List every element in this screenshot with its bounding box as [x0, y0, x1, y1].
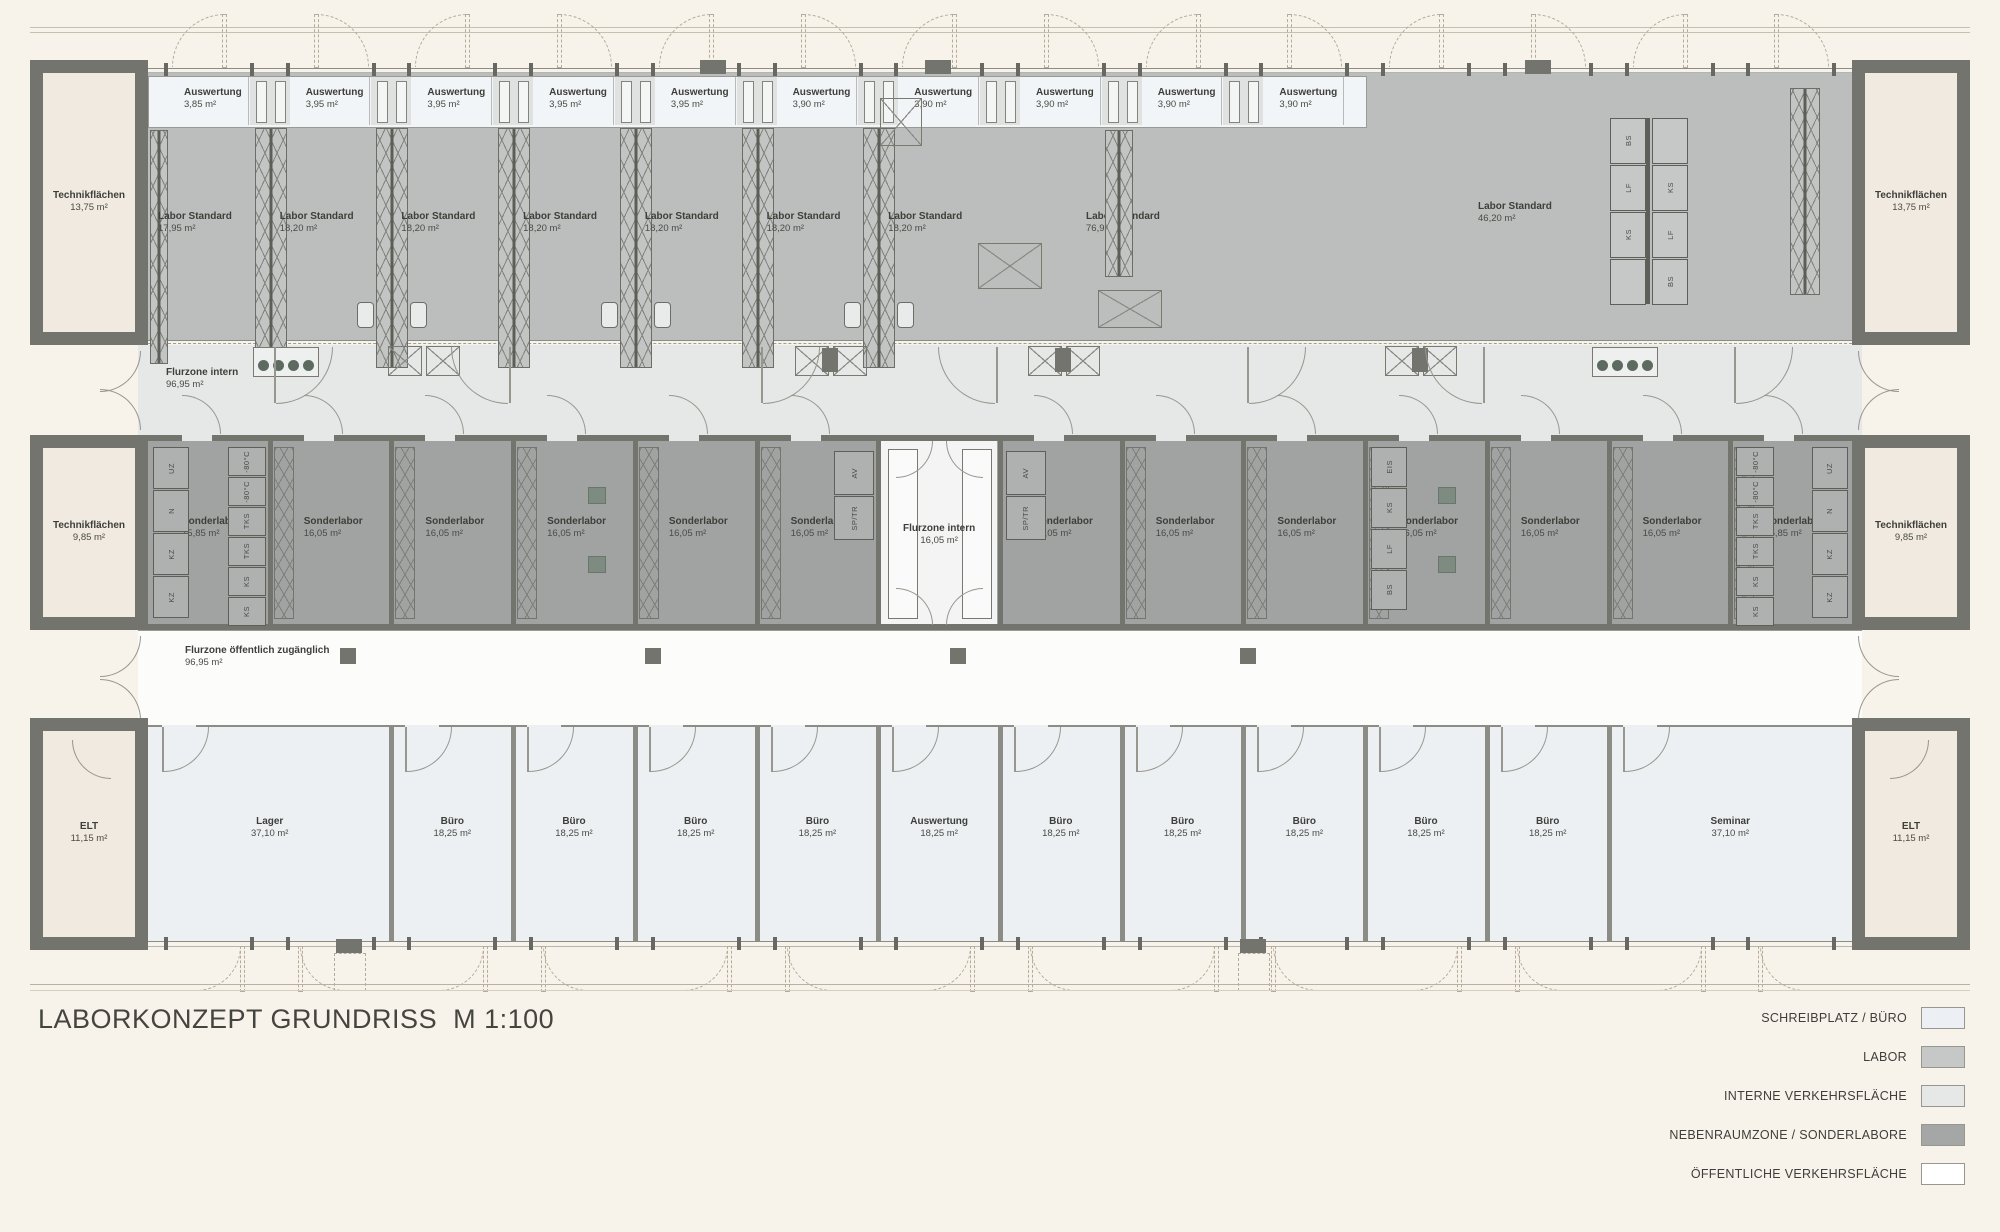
corridor-shaft-box: [1066, 346, 1100, 376]
entry-door-swing-arc: [1389, 14, 1442, 67]
auswertung-room-label-area: 3,95 m²: [427, 99, 459, 111]
facade-mullion-tick: [1467, 937, 1471, 950]
lab-equipment-box: LF: [1610, 165, 1646, 211]
equipment-code: KZ: [1825, 549, 1834, 560]
sonder-room-label-name: Sonderlabor: [304, 515, 363, 528]
lab-island-table: [1098, 290, 1162, 328]
facade-mullion-tick: [372, 937, 376, 950]
auswertung-room-label-name: Auswertung: [1279, 86, 1337, 99]
sonder-equipment-box: KZ: [153, 533, 189, 575]
office-room-label-name: Büro: [1049, 815, 1072, 828]
sonder-rack-strip: [1126, 447, 1146, 619]
equipment-code: LF: [1666, 230, 1675, 240]
equipment-code: TKS: [242, 513, 251, 529]
office-door-leaf: [771, 727, 773, 772]
auswertung-room-label-area: 3,90 m²: [1036, 99, 1068, 111]
sonder-equipment-box: KS: [1736, 567, 1774, 596]
plan-sheet: Auswertung3,85 m²Auswertung3,95 m²Auswer…: [0, 0, 2000, 1232]
auswertung-room-label-area: 3,90 m²: [1279, 99, 1311, 111]
intern-corridor-label-name: Flurzone intern: [166, 366, 238, 379]
sonder-equipment-box: AV: [834, 451, 874, 495]
entry-door-leaf: [1683, 14, 1688, 68]
sonder-room-label-name: Sonderlabor: [1399, 515, 1458, 528]
sonder-green-unit: [588, 556, 606, 573]
lab-sink: [410, 302, 427, 328]
labor-room-label-name: Labor Standard: [1478, 200, 1552, 213]
office-room-label-name: Lager: [256, 815, 283, 828]
office-room-label-name: Büro: [684, 815, 707, 828]
labor-room-label-area: 18,20 m²: [888, 223, 926, 235]
equipment-code: BS: [1385, 584, 1394, 595]
entry-door-swing-arc: [1776, 14, 1829, 67]
sonder-equipment-box: -80°C: [1736, 447, 1774, 476]
sonder-equipment-box: KZ: [153, 576, 189, 618]
facade-mullion-tick: [1381, 63, 1385, 76]
labor-room-label-name: Labor Standard: [523, 210, 597, 223]
auswertung-room-label-area: 3,95 m²: [306, 99, 338, 111]
lab-equipment-box: BS: [1610, 118, 1646, 164]
facade-mullion-tick: [1503, 63, 1507, 76]
facade-mullion-tick: [1224, 937, 1228, 950]
legend-row: INTERNE VERKEHRSFLÄCHE: [1300, 1085, 1965, 1107]
facade-mullion-tick: [859, 63, 863, 76]
legend-swatch: [1921, 1046, 1965, 1068]
legend-label: INTERNE VERKEHRSFLÄCHE: [1724, 1089, 1907, 1103]
corridor-column: [340, 648, 356, 664]
labor-room-label-area: 18,20 m²: [767, 223, 805, 235]
main-entry-block: [1525, 60, 1551, 74]
lab-equipment-box: KS: [1652, 165, 1688, 211]
sonder-equipment-box: BS: [1371, 570, 1407, 610]
public-corridor: [138, 630, 1862, 726]
sonder-rack-strip: [1613, 447, 1633, 619]
technik-room-label-name: Technikflächen: [53, 519, 125, 532]
sonder-rack-strip: [1491, 447, 1511, 619]
lab-sink: [357, 302, 374, 328]
entry-door-swing-arc: [1289, 14, 1342, 67]
office-partition-wall: [1120, 727, 1125, 941]
auswertung-door-leaf: [986, 81, 997, 123]
equipment-code: LF: [1385, 544, 1394, 554]
office-room-label-name: Büro: [1536, 815, 1559, 828]
facade-mullion-tick: [493, 63, 497, 76]
auswertung-room-label-name: Auswertung: [793, 86, 851, 99]
sonder-door-gap: [182, 435, 212, 441]
seating-dot: [1627, 360, 1638, 371]
legend-swatch: [1921, 1163, 1965, 1185]
equipment-code: -80°C: [242, 451, 251, 473]
entry-door-swing-arc: [1046, 14, 1099, 67]
main-entry-block: [925, 60, 951, 74]
corridor-shaft-core: [1055, 348, 1071, 372]
auswertung-room-label-name: Auswertung: [306, 86, 364, 99]
sonder-equipment-box: UZ: [153, 447, 189, 489]
sonder-equipment-box: KZ: [1812, 576, 1848, 618]
office-room-label-area: 18,25 m²: [1042, 828, 1080, 840]
entry-door-leaf: [801, 14, 806, 68]
facade-mullion-tick: [407, 63, 411, 76]
equipment-code: KS: [1666, 182, 1675, 193]
title-divider: [30, 984, 1970, 991]
auswertung-door-leaf: [1127, 81, 1138, 123]
office-partition-wall: [1241, 727, 1246, 941]
intern-corridor-label-area: 96,95 m²: [166, 379, 204, 391]
sonder-equipment-box: AV: [1006, 451, 1046, 495]
labor-room-label-area: 18,20 m²: [645, 223, 683, 235]
lab-bench-strip: [1790, 88, 1820, 295]
office-room-label-area: 18,25 m²: [434, 828, 472, 840]
office-room-label-area: 18,25 m²: [555, 828, 593, 840]
facade-mullion-tick: [529, 937, 533, 950]
equipment-code: TKS: [242, 543, 251, 559]
sonder-room-label-area: 16,05 m²: [1521, 528, 1559, 540]
equipment-code: KS: [1385, 502, 1394, 513]
equipment-code: LF: [1624, 183, 1633, 193]
lab-sink: [844, 302, 861, 328]
equipment-code: -80°C: [1751, 451, 1760, 473]
auswertung-room-label-name: Auswertung: [914, 86, 972, 99]
lab-sink: [897, 302, 914, 328]
office-room-label-area: 18,25 m²: [799, 828, 837, 840]
equipment-code: BS: [1624, 135, 1633, 146]
equipment-code: KS: [1751, 606, 1760, 617]
equipment-code: KS: [242, 606, 251, 617]
sonder-rack-strip: [395, 447, 415, 619]
lab-island-table: [880, 98, 922, 146]
equipment-code: N: [1825, 508, 1834, 514]
equipment-code: EIS: [1385, 460, 1394, 474]
facade-mullion-tick: [1138, 63, 1142, 76]
lab-sink: [601, 302, 618, 328]
equipment-code: TKS: [1751, 513, 1760, 529]
sonder-room-label-name: Sonderlabor: [425, 515, 484, 528]
facade-mullion-tick: [980, 63, 984, 76]
sonder-equipment-box: KS: [228, 597, 266, 626]
office-partition-wall: [389, 727, 394, 941]
auswertung-door-leaf: [499, 81, 510, 123]
auswertung-door-leaf: [743, 81, 754, 123]
equipment-code: -80°C: [1751, 481, 1760, 503]
sonder-equipment-box: -80°C: [1736, 477, 1774, 506]
sonder-door-gap: [1277, 435, 1307, 441]
office-partition-wall: [755, 727, 760, 941]
office-room-label-area: 18,25 m²: [920, 828, 958, 840]
sonder-room-label-name: Sonderlabor: [1277, 515, 1336, 528]
lab-door-leaf: [274, 347, 276, 403]
facade-mullion-tick: [894, 63, 898, 76]
office-door-leaf: [1501, 727, 1503, 772]
equipment-code: -80°C: [242, 481, 251, 503]
sonder-equipment-box: LF: [1371, 529, 1407, 569]
labor-room-label-area: 18,20 m²: [401, 223, 439, 235]
elt-room-label-name: ELT: [80, 820, 98, 833]
auswertung-room-label-area: 3,95 m²: [671, 99, 703, 111]
office-door-leaf: [1379, 727, 1381, 772]
equipment-code: SP/TR: [1021, 506, 1030, 531]
sonder-partition-wall: [1363, 441, 1368, 624]
sonder-equipment-box: TKS: [228, 537, 266, 566]
facade-mullion-tick: [980, 937, 984, 950]
facade-mullion-tick: [250, 63, 254, 76]
elt-room-label-name: ELT: [1902, 820, 1920, 833]
office-room-label-area: 18,25 m²: [1286, 828, 1324, 840]
sonder-rack-strip: [517, 447, 537, 619]
sonder-room-label-area: 16,05 m²: [547, 528, 585, 540]
entry-door-swing-arc: [559, 14, 612, 67]
sonder-partition-wall: [1607, 441, 1612, 624]
sonder-door-gap: [669, 435, 699, 441]
sonder-room-label-name: Sonderlabor: [1521, 515, 1580, 528]
entry-door-swing-arc: [415, 14, 468, 67]
lab-sink: [654, 302, 671, 328]
technik-room-label-name: Technikflächen: [1875, 189, 1947, 202]
office-room-label-name: Auswertung: [910, 815, 968, 828]
sonder-rack-strip: [274, 447, 294, 619]
sonder-room-label-area: 16,05 m²: [425, 528, 463, 540]
entry-door-leaf: [1196, 14, 1201, 68]
auswertung-room-label-area: 3,90 m²: [1158, 99, 1190, 111]
sonder-equipment-box: KS: [1371, 488, 1407, 528]
legend-swatch: [1921, 1085, 1965, 1107]
office-room-label-name: Büro: [1293, 815, 1316, 828]
facade-mullion-tick: [164, 63, 168, 76]
technik-room-label-area: 13,75 m²: [70, 202, 108, 214]
office-door-leaf: [1257, 727, 1259, 772]
sonder-room-label-area: 16,05 m²: [791, 528, 829, 540]
office-room-label-area: 18,25 m²: [677, 828, 715, 840]
sonder-door-gap: [1399, 435, 1429, 441]
facade-mullion-tick: [1746, 63, 1750, 76]
sonder-equipment-box: TKS: [228, 507, 266, 536]
seating-dot: [1612, 360, 1623, 371]
office-door-leaf: [649, 727, 651, 772]
office-partition-wall: [1607, 727, 1612, 941]
sonder-rack-strip: [761, 447, 781, 619]
lab-equipment-box: KS: [1610, 212, 1646, 258]
sonder-equipment-box: TKS: [1736, 537, 1774, 566]
facade-mullion-tick: [773, 63, 777, 76]
facade-mullion-tick: [529, 63, 533, 76]
technik-room-label-area: 9,85 m²: [73, 532, 105, 544]
entry-door-swing-arc: [316, 14, 369, 67]
auswertung-room-label-name: Auswertung: [549, 86, 607, 99]
facade-mullion-tick: [773, 937, 777, 950]
equipment-code: KZ: [167, 592, 176, 603]
double-door-arc: [1858, 389, 1899, 430]
sonder-flur-label-name: Flurzone intern: [903, 522, 975, 535]
office-room-label-name: Büro: [1171, 815, 1194, 828]
sonder-equipment-box: EIS: [1371, 447, 1407, 487]
lab-bench-strip: [376, 128, 408, 368]
auswertung-room-label-area: 3,85 m²: [184, 99, 216, 111]
auswertung-door-leaf: [640, 81, 651, 123]
lab-bench-strip: [150, 130, 168, 364]
sonder-room-label-area: 16,05 m²: [669, 528, 707, 540]
sonder-room-label-name: Sonderlabor: [669, 515, 728, 528]
facade-mullion-tick: [859, 937, 863, 950]
lab-door-leaf: [1247, 347, 1249, 403]
seating-dot: [1597, 360, 1608, 371]
sonder-equipment-box: SP/TR: [1006, 496, 1046, 540]
auswertung-door-leaf: [864, 81, 875, 123]
facade-mullion-tick: [1102, 63, 1106, 76]
facade-mullion-tick: [286, 937, 290, 950]
sonder-partition-wall: [268, 441, 273, 624]
facade-mullion-tick: [1625, 937, 1629, 950]
facade-mullion-tick: [1589, 937, 1593, 950]
entry-door-leaf: [314, 14, 319, 68]
sonder-green-unit: [1438, 487, 1456, 504]
sonder-equipment-box: KZ: [1812, 533, 1848, 575]
legend-label: ÖFFENTLICHE VERKEHRSFLÄCHE: [1691, 1167, 1907, 1181]
facade-mullion-tick: [1016, 63, 1020, 76]
office-room-label-name: Büro: [441, 815, 464, 828]
lab-bench-strip: [1105, 130, 1133, 277]
office-partition-wall: [1363, 727, 1368, 941]
auswertung-door-leaf: [275, 81, 286, 123]
facade-mullion-tick: [737, 63, 741, 76]
facade-mullion-tick: [1138, 937, 1142, 950]
facade-mullion-tick: [1259, 63, 1263, 76]
corridor-shaft-box: [833, 346, 867, 376]
sonder-equipment-box: KS: [228, 567, 266, 596]
sonder-room-label-area: 16,05 m²: [1643, 528, 1681, 540]
auswertung-door-leaf: [1005, 81, 1016, 123]
lab-bench-strip: [620, 128, 652, 368]
facade-mullion-tick: [615, 937, 619, 950]
sonder-door-gap: [547, 435, 577, 441]
entry-door-leaf: [465, 14, 470, 68]
entry-door-leaf: [1287, 14, 1292, 68]
office-room-label-area: 37,10 m²: [251, 828, 289, 840]
lab-bench-strip: [742, 128, 774, 368]
sonder-door-gap: [1643, 435, 1673, 441]
sonder-flur-label-area: 16,05 m²: [920, 535, 958, 547]
legend-row: ÖFFENTLICHE VERKEHRSFLÄCHE: [1300, 1163, 1965, 1185]
sonder-room-label-name: Sonderlabor: [547, 515, 606, 528]
facade-mullion-tick: [894, 937, 898, 950]
lab-island-table: [978, 243, 1042, 289]
auswertung-room-label-name: Auswertung: [427, 86, 485, 99]
sonder-room-label-name: Sonderlabor: [1643, 515, 1702, 528]
title-scale: M 1:100: [453, 1004, 554, 1034]
auswertung-door-leaf: [621, 81, 632, 123]
double-door-arc: [100, 679, 141, 720]
facade-mullion-tick: [1467, 63, 1471, 76]
sonder-partition-wall: [511, 441, 516, 624]
facade-mullion-tick: [493, 937, 497, 950]
facade-mullion-tick: [1832, 937, 1836, 950]
equipment-code: UZ: [167, 463, 176, 474]
public-corridor-label-area: 96,95 m²: [185, 657, 223, 669]
lab-bench-strip: [498, 128, 530, 368]
main-exit-block: [1240, 939, 1266, 953]
facade-mullion-tick: [737, 937, 741, 950]
lab-door-leaf: [996, 347, 998, 403]
facade-mullion-tick: [1345, 63, 1349, 76]
entry-door-leaf: [1044, 14, 1049, 68]
sonder-partition-wall: [1728, 441, 1733, 624]
office-door-leaf: [1623, 727, 1625, 772]
sonder-rack-strip: [639, 447, 659, 619]
elt-room-label-area: 11,15 m²: [1893, 833, 1930, 845]
facade-mullion-tick: [615, 63, 619, 76]
sonder-partition-wall: [1241, 441, 1246, 624]
title-text: LABORKONZEPT GRUNDRISS: [38, 1004, 437, 1034]
legend-label: NEBENRAUMZONE / SONDERLABORE: [1669, 1128, 1907, 1142]
facade-mullion-tick: [372, 63, 376, 76]
office-room-label-area: 37,10 m²: [1712, 828, 1750, 840]
legend-label: LABOR: [1863, 1050, 1907, 1064]
double-door-arc: [100, 351, 141, 392]
facade-mullion-tick: [164, 937, 168, 950]
facade-mullion-tick: [651, 63, 655, 76]
lab-door-leaf: [761, 347, 763, 403]
lab-door-leaf: [1483, 347, 1485, 403]
legend-swatch: [1921, 1007, 1965, 1029]
sonder-equipment-box: N: [1812, 490, 1848, 532]
legend-row: NEBENRAUMZONE / SONDERLABORE: [1300, 1124, 1965, 1146]
double-door-arc: [100, 389, 141, 430]
sonder-door-gap: [304, 435, 334, 441]
auswertung-door-leaf: [256, 81, 267, 123]
office-room-label-area: 18,25 m²: [1529, 828, 1567, 840]
legend-row: LABOR: [1300, 1046, 1965, 1068]
sonder-partition-wall: [876, 441, 881, 624]
office-partition-wall: [633, 727, 638, 941]
corridor-shaft-core: [822, 348, 838, 372]
equipment-code: KS: [1624, 229, 1633, 240]
sonder-green-unit: [588, 487, 606, 504]
sonder-door-gap: [1521, 435, 1551, 441]
sonder-partition-wall: [1485, 441, 1490, 624]
corridor-column: [645, 648, 661, 664]
sonder-partition-wall: [755, 441, 760, 624]
facade-mullion-tick: [1345, 937, 1349, 950]
double-door-arc: [1858, 636, 1899, 677]
sonder-door-gap: [1764, 435, 1794, 441]
facade-mullion-tick: [1589, 63, 1593, 76]
technik-room-label-name: Technikflächen: [53, 189, 125, 202]
facade-mullion-tick: [1832, 63, 1836, 76]
public-corridor-label-name: Flurzone öffentlich zugänglich: [185, 644, 329, 657]
technik-room-label-area: 9,85 m²: [1895, 532, 1927, 544]
auswertung-door-leaf: [762, 81, 773, 123]
bottom-facade-line: [140, 941, 1860, 947]
facade-mullion-tick: [1503, 937, 1507, 950]
sonder-room-label-area: 16,05 m²: [1277, 528, 1315, 540]
facade-mullion-tick: [1711, 937, 1715, 950]
auswertung-room-label-name: Auswertung: [671, 86, 729, 99]
entry-door-leaf: [557, 14, 562, 68]
main-entry-block: [700, 60, 726, 74]
lab-equipment-box: BS: [1652, 259, 1688, 305]
sonder-partition-wall: [389, 441, 394, 624]
labor-room-label-name: Labor Standard: [888, 210, 962, 223]
corridor-column: [1240, 648, 1256, 664]
top-facade-line: [140, 68, 1860, 73]
technik-room-label-area: 13,75 m²: [1892, 202, 1930, 214]
labor-room-label-area: 46,20 m²: [1478, 213, 1516, 225]
sonder-door-gap: [1034, 435, 1064, 441]
labor-room-label-name: Labor Standard: [767, 210, 841, 223]
facade-mullion-tick: [1102, 937, 1106, 950]
facade-mullion-tick: [1381, 937, 1385, 950]
legend-row: SCHREIBPLATZ / BÜRO: [1300, 1007, 1965, 1029]
office-partition-wall: [876, 727, 881, 941]
office-door-leaf: [1136, 727, 1138, 772]
equipment-code: UZ: [1825, 463, 1834, 474]
